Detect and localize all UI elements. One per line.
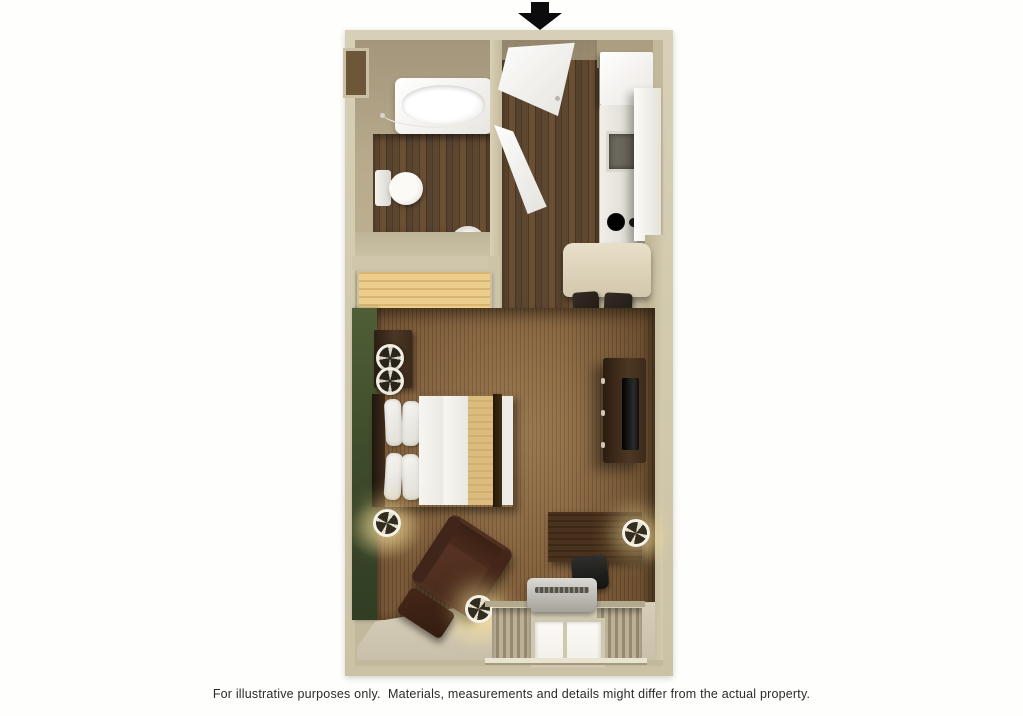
tall-cabinet bbox=[634, 88, 661, 241]
bed-foot-linen bbox=[502, 396, 513, 505]
entrance-down-arrow-icon bbox=[518, 2, 562, 29]
dining-counter bbox=[563, 243, 651, 297]
table-lamp-icon bbox=[376, 367, 404, 395]
television bbox=[622, 378, 639, 450]
drawer-knob bbox=[601, 410, 605, 416]
floor-lamp-icon bbox=[465, 595, 493, 623]
pillow bbox=[384, 399, 403, 447]
closet-wall bbox=[352, 256, 500, 270]
cooktop-burner bbox=[607, 213, 625, 231]
desk-lamp-icon bbox=[622, 519, 650, 547]
toilet-bowl bbox=[389, 172, 423, 205]
pillow bbox=[401, 454, 421, 501]
bed-frame bbox=[493, 394, 502, 507]
door-knob bbox=[555, 96, 560, 101]
arrow-head bbox=[518, 13, 562, 30]
pillow bbox=[401, 401, 421, 447]
window-sill bbox=[485, 658, 647, 665]
drawer-knob bbox=[601, 378, 605, 384]
duvet bbox=[419, 396, 468, 505]
disclaimer-caption: For illustrative purposes only. Material… bbox=[0, 687, 1023, 701]
curtain-left bbox=[492, 608, 531, 660]
ac-vent bbox=[535, 587, 589, 593]
drawer-knob bbox=[601, 442, 605, 448]
bed bbox=[372, 394, 513, 507]
floor-plan bbox=[345, 30, 673, 676]
floor-plan-image: For illustrative purposes only. Material… bbox=[0, 0, 1023, 716]
blanket-stripe bbox=[468, 396, 493, 505]
wall-niche bbox=[343, 48, 369, 98]
shower-curtain-rod bbox=[381, 96, 495, 128]
floor-lamp-icon bbox=[373, 509, 401, 537]
ac-unit bbox=[527, 578, 597, 612]
